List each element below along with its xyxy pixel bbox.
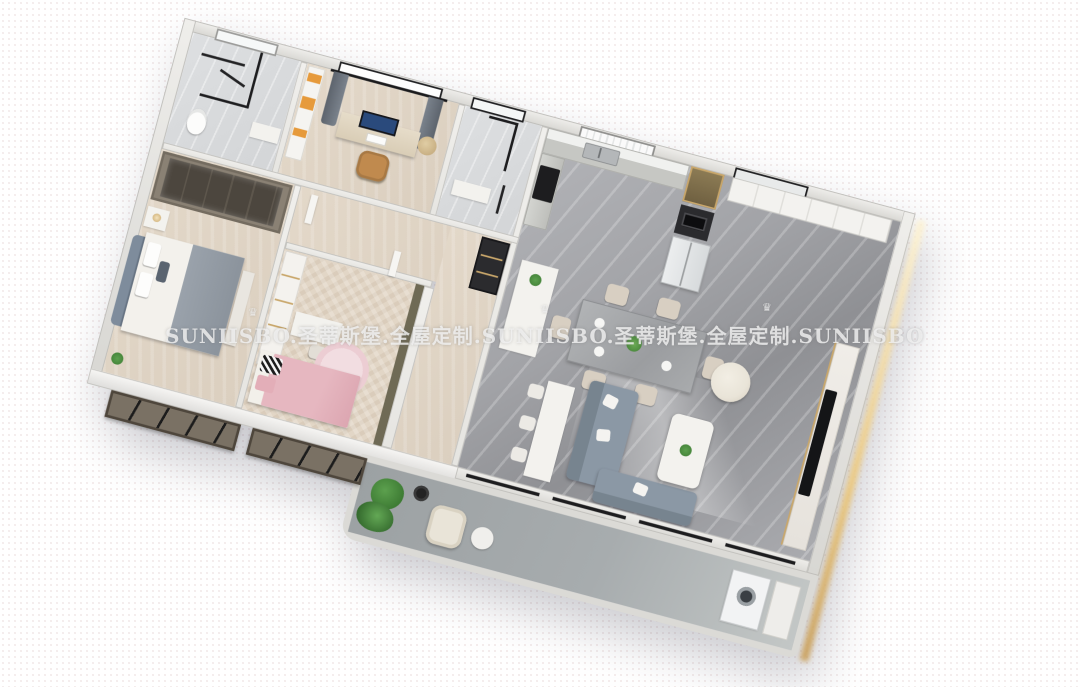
crown-icon-2: ♛ (540, 303, 550, 316)
crown-icon-3: ♛ (762, 301, 772, 314)
sofa-pillow-2 (596, 429, 611, 442)
page: { "watermark": { "text": "SUNIISBO.圣蒂斯堡.… (0, 0, 1080, 687)
crown-icon: ♛ (248, 306, 258, 319)
watermark-text: SUNIISBO.圣蒂斯堡.全屋定制.SUNIISBO.圣蒂斯堡.全屋定制.SU… (165, 320, 925, 349)
